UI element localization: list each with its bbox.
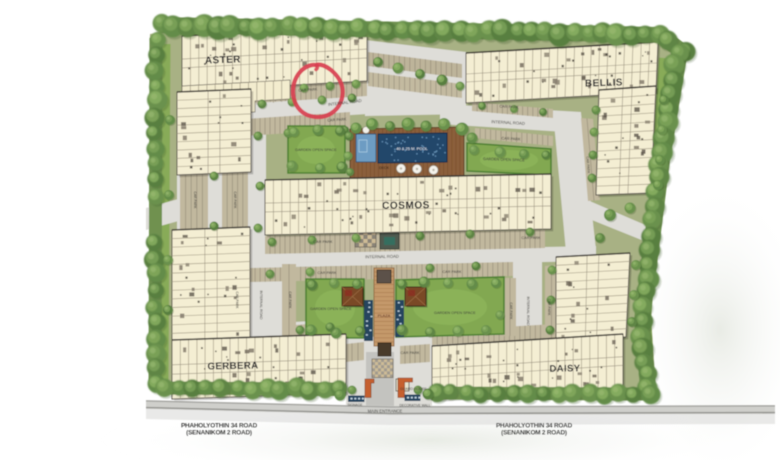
svg-text:GARDEN OPEN SPACE: GARDEN OPEN SPACE bbox=[310, 307, 352, 311]
svg-text:CAR PARK: CAR PARK bbox=[288, 291, 292, 309]
svg-text:(SENANIKOM 2 ROAD): (SENANIKOM 2 ROAD) bbox=[501, 430, 567, 437]
svg-text:PHAHOLYOTHIN 34 ROAD: PHAHOLYOTHIN 34 ROAD bbox=[181, 423, 258, 430]
svg-text:CAR PARK: CAR PARK bbox=[400, 351, 420, 355]
svg-text:CAR PARK: CAR PARK bbox=[521, 236, 541, 240]
svg-text:GARDEN OPEN SPACE: GARDEN OPEN SPACE bbox=[295, 148, 337, 152]
svg-text:CAR PARK: CAR PARK bbox=[193, 191, 197, 209]
svg-text:DECK: DECK bbox=[379, 166, 390, 170]
svg-text:MAIN ENTRANCE: MAIN ENTRANCE bbox=[368, 409, 403, 414]
svg-text:40 & 25 M. POOL: 40 & 25 M. POOL bbox=[396, 146, 428, 151]
svg-text:GERBERA: GERBERA bbox=[207, 361, 258, 373]
svg-text:(SENANIKOM 2 ROAD): (SENANIKOM 2 ROAD) bbox=[186, 430, 252, 437]
svg-text:PHAHOLYOTHIN 34 ROAD: PHAHOLYOTHIN 34 ROAD bbox=[496, 423, 573, 430]
svg-text:PLAZA: PLAZA bbox=[378, 313, 391, 318]
svg-text:GARDEN OPEN SPACE: GARDEN OPEN SPACE bbox=[434, 311, 476, 315]
svg-text:INTERNAL ROAD: INTERNAL ROAD bbox=[259, 290, 263, 319]
svg-text:BELLIS: BELLIS bbox=[585, 77, 623, 89]
svg-text:COSMOS: COSMOS bbox=[382, 200, 430, 212]
svg-text:CAR PARK: CAR PARK bbox=[509, 302, 513, 320]
svg-text:INTERNAL ROAD: INTERNAL ROAD bbox=[526, 296, 530, 325]
svg-text:CAR PARK: CAR PARK bbox=[313, 240, 333, 244]
svg-text:CAR PARK: CAR PARK bbox=[442, 270, 462, 274]
svg-text:CAR PARK: CAR PARK bbox=[547, 298, 551, 316]
svg-text:CAR PARK: CAR PARK bbox=[235, 291, 239, 309]
svg-text:CAR PARK: CAR PARK bbox=[317, 271, 337, 275]
svg-text:GUARD HOUSE: GUARD HOUSE bbox=[400, 387, 427, 391]
svg-text:SIGNAGE: SIGNAGE bbox=[347, 403, 363, 407]
svg-text:DECORATIVE WALL: DECORATIVE WALL bbox=[400, 404, 431, 408]
svg-text:INTERNAL ROAD: INTERNAL ROAD bbox=[365, 254, 399, 260]
svg-text:DAISY: DAISY bbox=[549, 363, 580, 375]
svg-text:CAR PARK: CAR PARK bbox=[233, 191, 237, 209]
svg-text:ASTER: ASTER bbox=[205, 54, 242, 66]
